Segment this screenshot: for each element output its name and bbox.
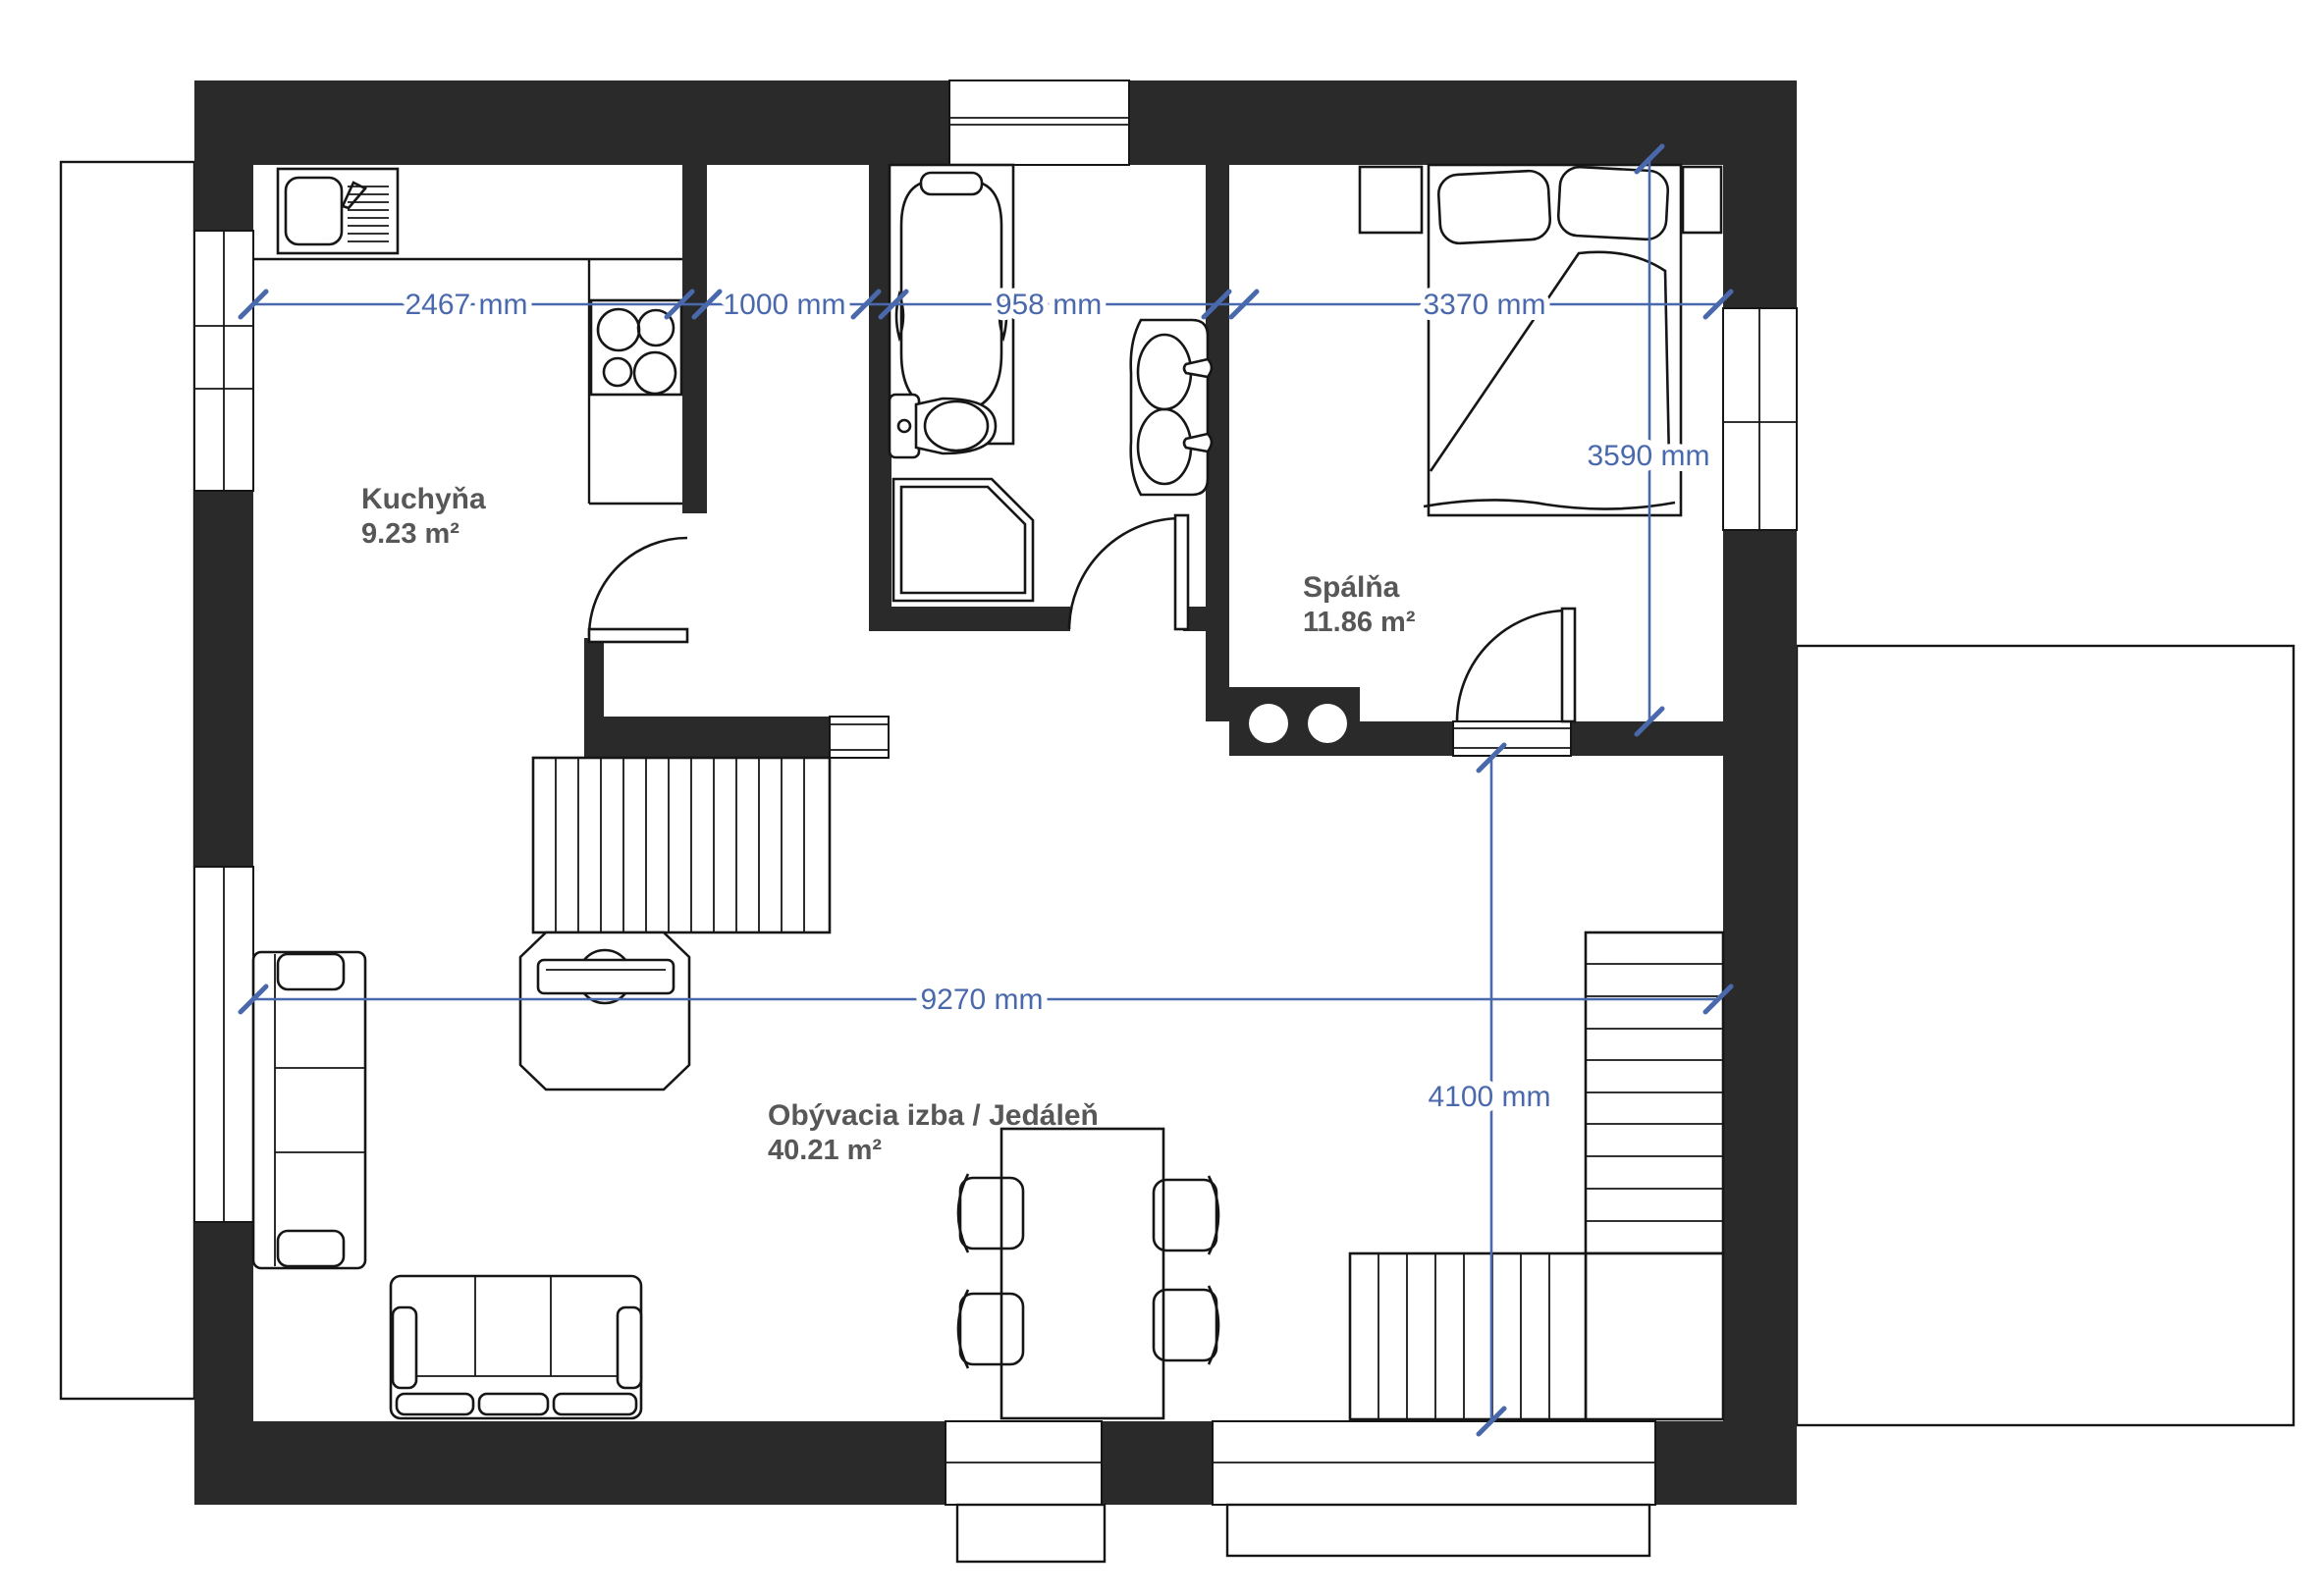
bedroom-door [1457, 609, 1575, 721]
door-bottom-entrance [945, 1421, 1102, 1505]
svg-text:4100 mm: 4100 mm [1428, 1081, 1550, 1113]
stairs-main [533, 758, 830, 932]
terrace-right [1797, 646, 2294, 1425]
floor-plan: 2467 mm 1000 mm 958 mm 3370 mm 3590 mm 9… [0, 0, 2323, 1596]
entrance-stoop [957, 1505, 1105, 1562]
window-left-living [194, 867, 253, 1222]
shower-icon [893, 479, 1033, 601]
kitchen-area: 9.23 m² [361, 518, 459, 550]
dim-kitchen-width: 2467 mm [405, 289, 527, 321]
window-bottom-right [1213, 1421, 1655, 1505]
dim-living-width: 9270 mm [241, 984, 1731, 1016]
toilet-icon [890, 395, 996, 457]
window-left-kitchen [194, 231, 253, 491]
kitchen-sink-icon [278, 169, 398, 253]
threshold-bedroom [1453, 721, 1571, 756]
bathroom-door [1069, 515, 1188, 629]
svg-text:9270 mm: 9270 mm [920, 984, 1043, 1016]
nightstand-left [1360, 167, 1422, 233]
window-top [949, 80, 1129, 165]
sofa-bottom-icon [391, 1276, 641, 1418]
nightstand-right [1683, 167, 1721, 233]
dim-bedroom-width: 3370 mm [1423, 289, 1545, 321]
stairs-side [1350, 932, 1723, 1419]
terrace-left [61, 162, 194, 1399]
washbasins-icon [1131, 320, 1212, 495]
window-right-bedroom [1723, 308, 1797, 530]
threshold-stairs [830, 717, 889, 758]
living-label: Obývacia izba / Jedáleň [768, 1099, 1099, 1132]
media-unit-icon [520, 932, 689, 1090]
dim-corridor-width: 1000 mm [723, 289, 845, 321]
kitchen-label: Kuchyňa [361, 483, 486, 515]
bedroom-label: Spálňa [1303, 571, 1400, 604]
svg-text:3590 mm: 3590 mm [1587, 440, 1709, 472]
terrace-stoop [1227, 1505, 1649, 1556]
living-area: 40.21 m² [768, 1135, 882, 1166]
bedroom-area: 11.86 m² [1303, 607, 1416, 638]
dim-bathroom-width: 958 mm [996, 289, 1102, 321]
dining-table-icon [958, 1129, 1218, 1418]
kitchen-door [589, 538, 687, 642]
